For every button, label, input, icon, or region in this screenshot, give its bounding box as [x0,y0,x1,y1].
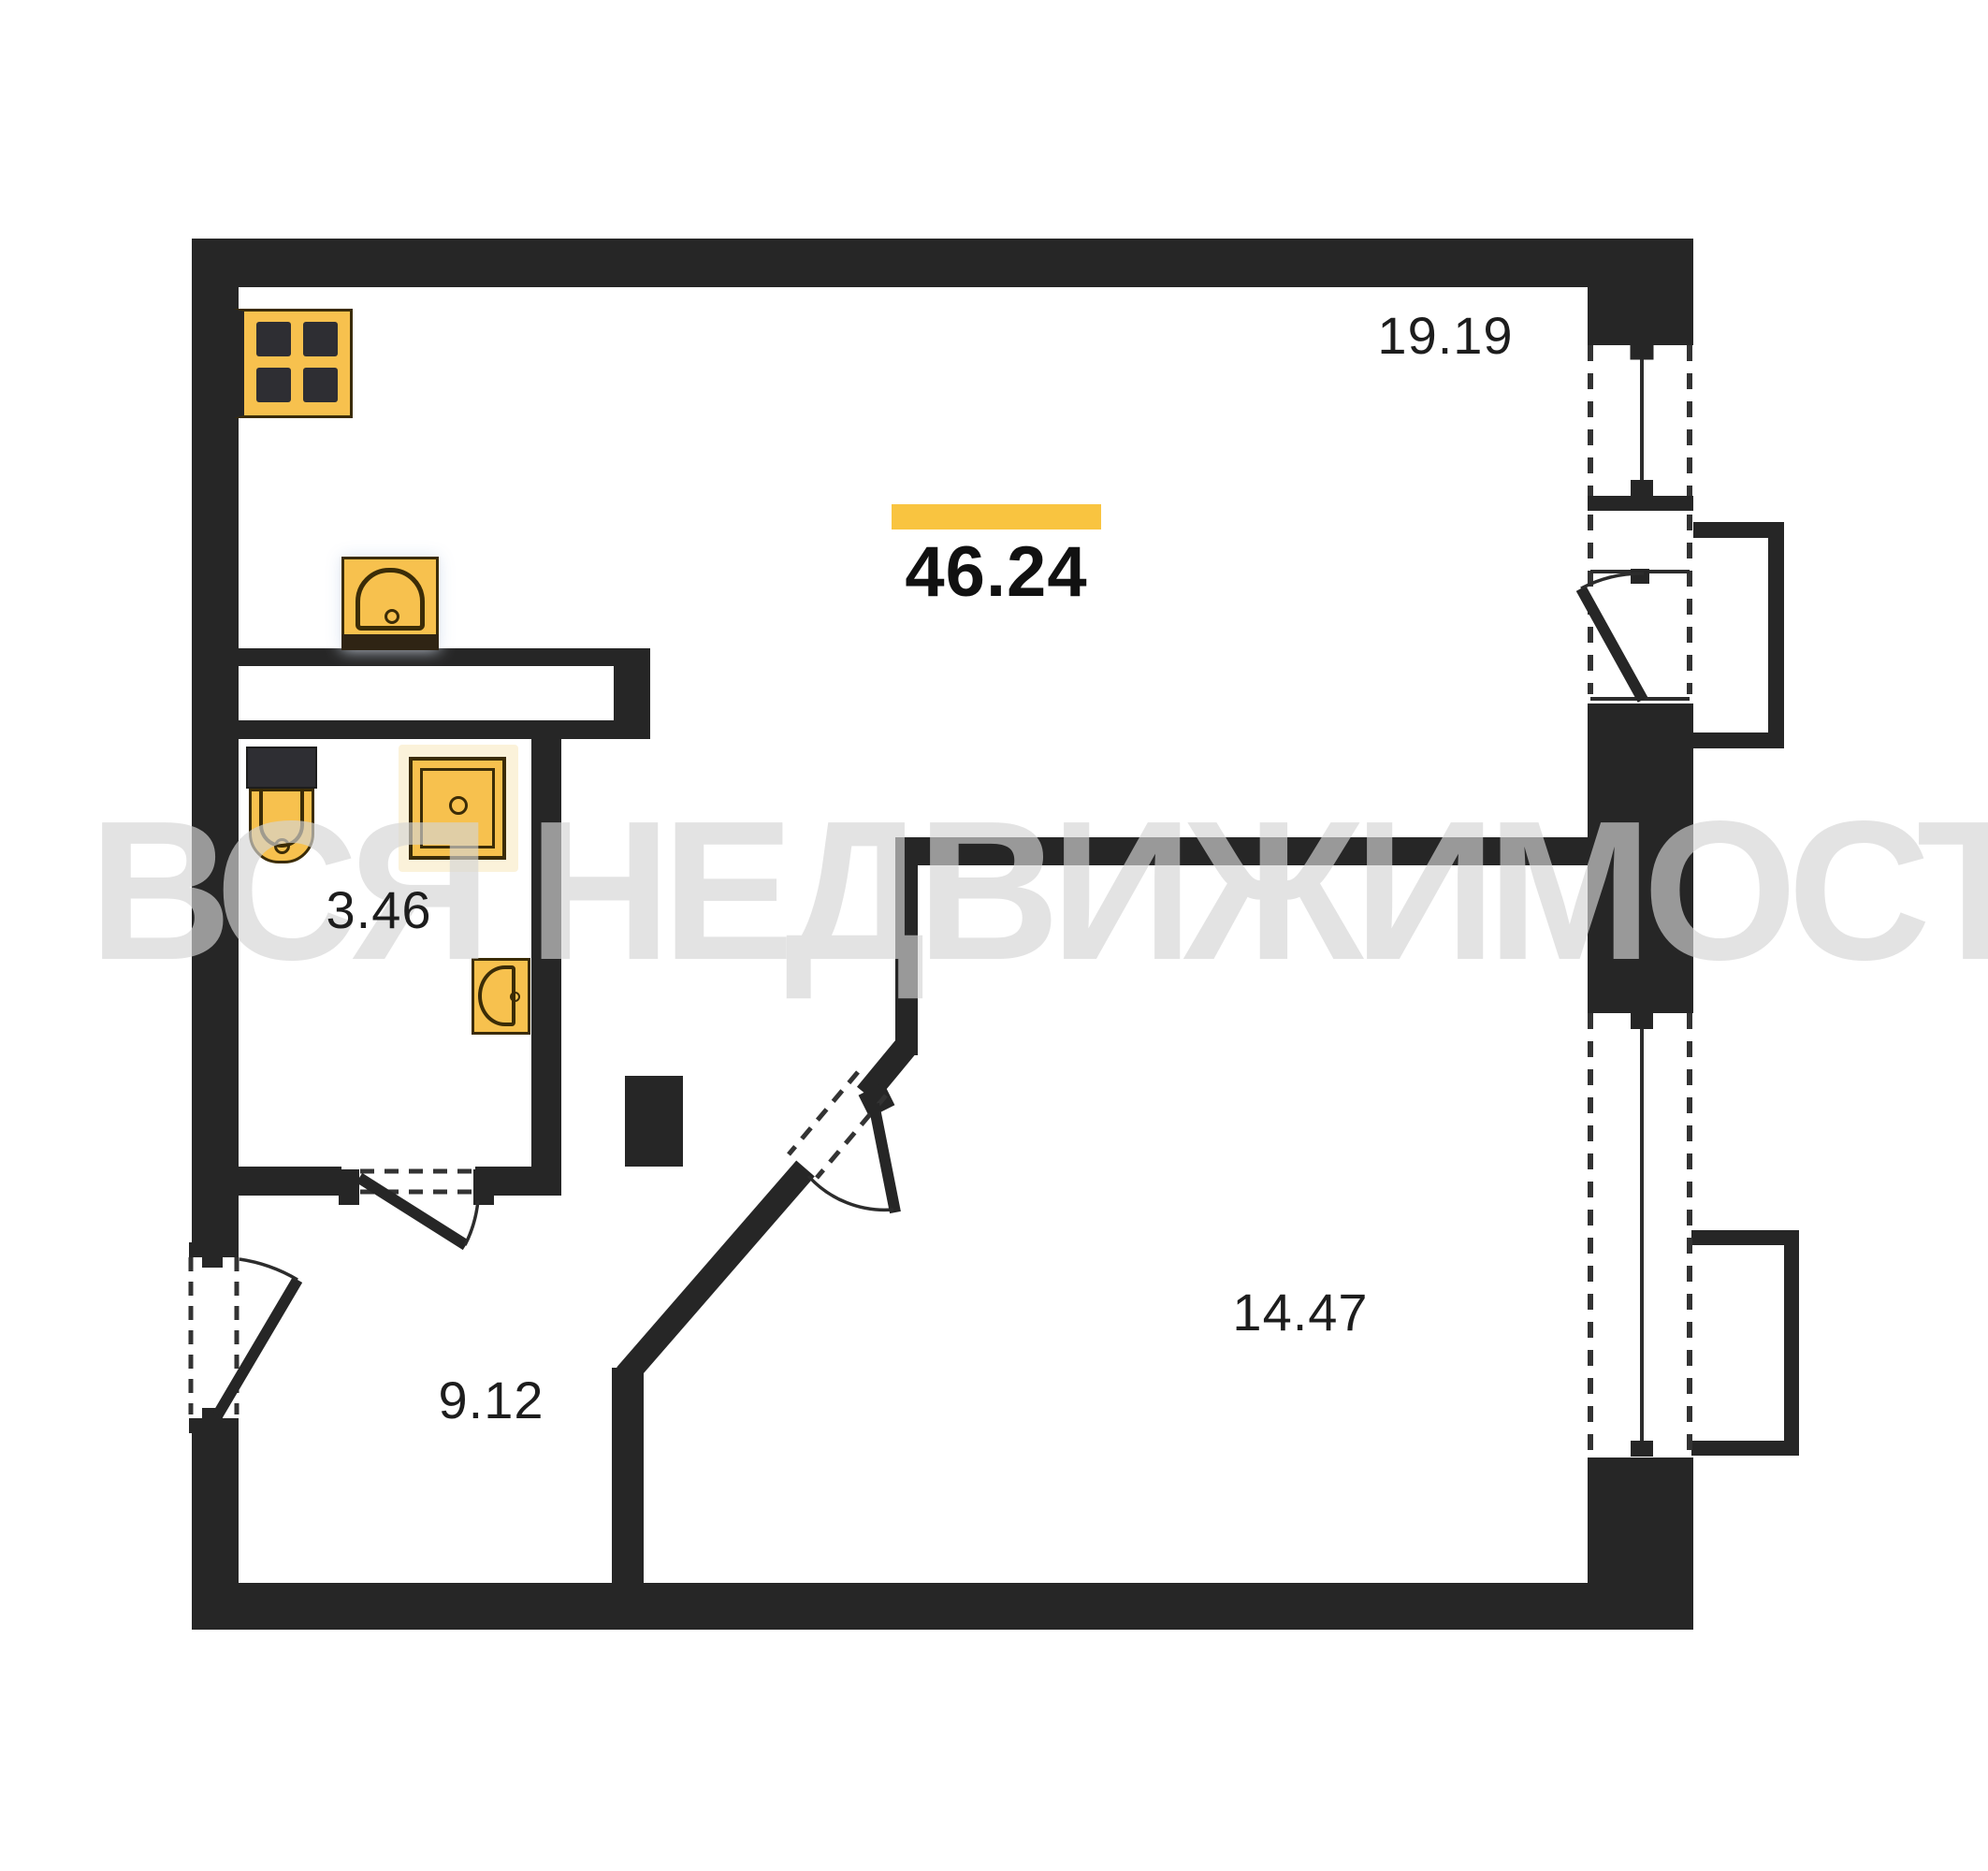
bedroom-diagonal-wall [626,1046,907,1583]
floor-plan: ВСЯ НЕДВИЖИМОСТЬ 19.19 46.24 3.46 9.12 1… [0,0,1988,1871]
balcony-door [1581,515,1690,700]
total-area-accent-bar [892,504,1101,529]
area-label-kitchen-living: 19.19 [1328,307,1562,365]
bathroom-door-arc [465,1200,478,1245]
bedroom-door-arc [808,1176,893,1210]
entrance-door-arc [239,1259,297,1280]
bedroom-door-leaf [874,1104,895,1212]
window-1 [1590,343,1690,496]
entrance-door-leaf [218,1280,297,1414]
bathroom-door [359,1171,478,1245]
entrance-door [191,1257,297,1414]
bathroom-door-leaf [359,1178,466,1245]
window-2 [1590,1013,1690,1457]
area-label-hallway: 9.12 [398,1371,585,1429]
diagonal-wall-lower [626,1168,805,1375]
area-label-bedroom: 14.47 [1188,1284,1413,1342]
area-label-bathroom: 3.46 [299,881,458,939]
total-area-label: 46.24 [870,533,1123,612]
diagonal-wall-upper [866,1046,907,1095]
